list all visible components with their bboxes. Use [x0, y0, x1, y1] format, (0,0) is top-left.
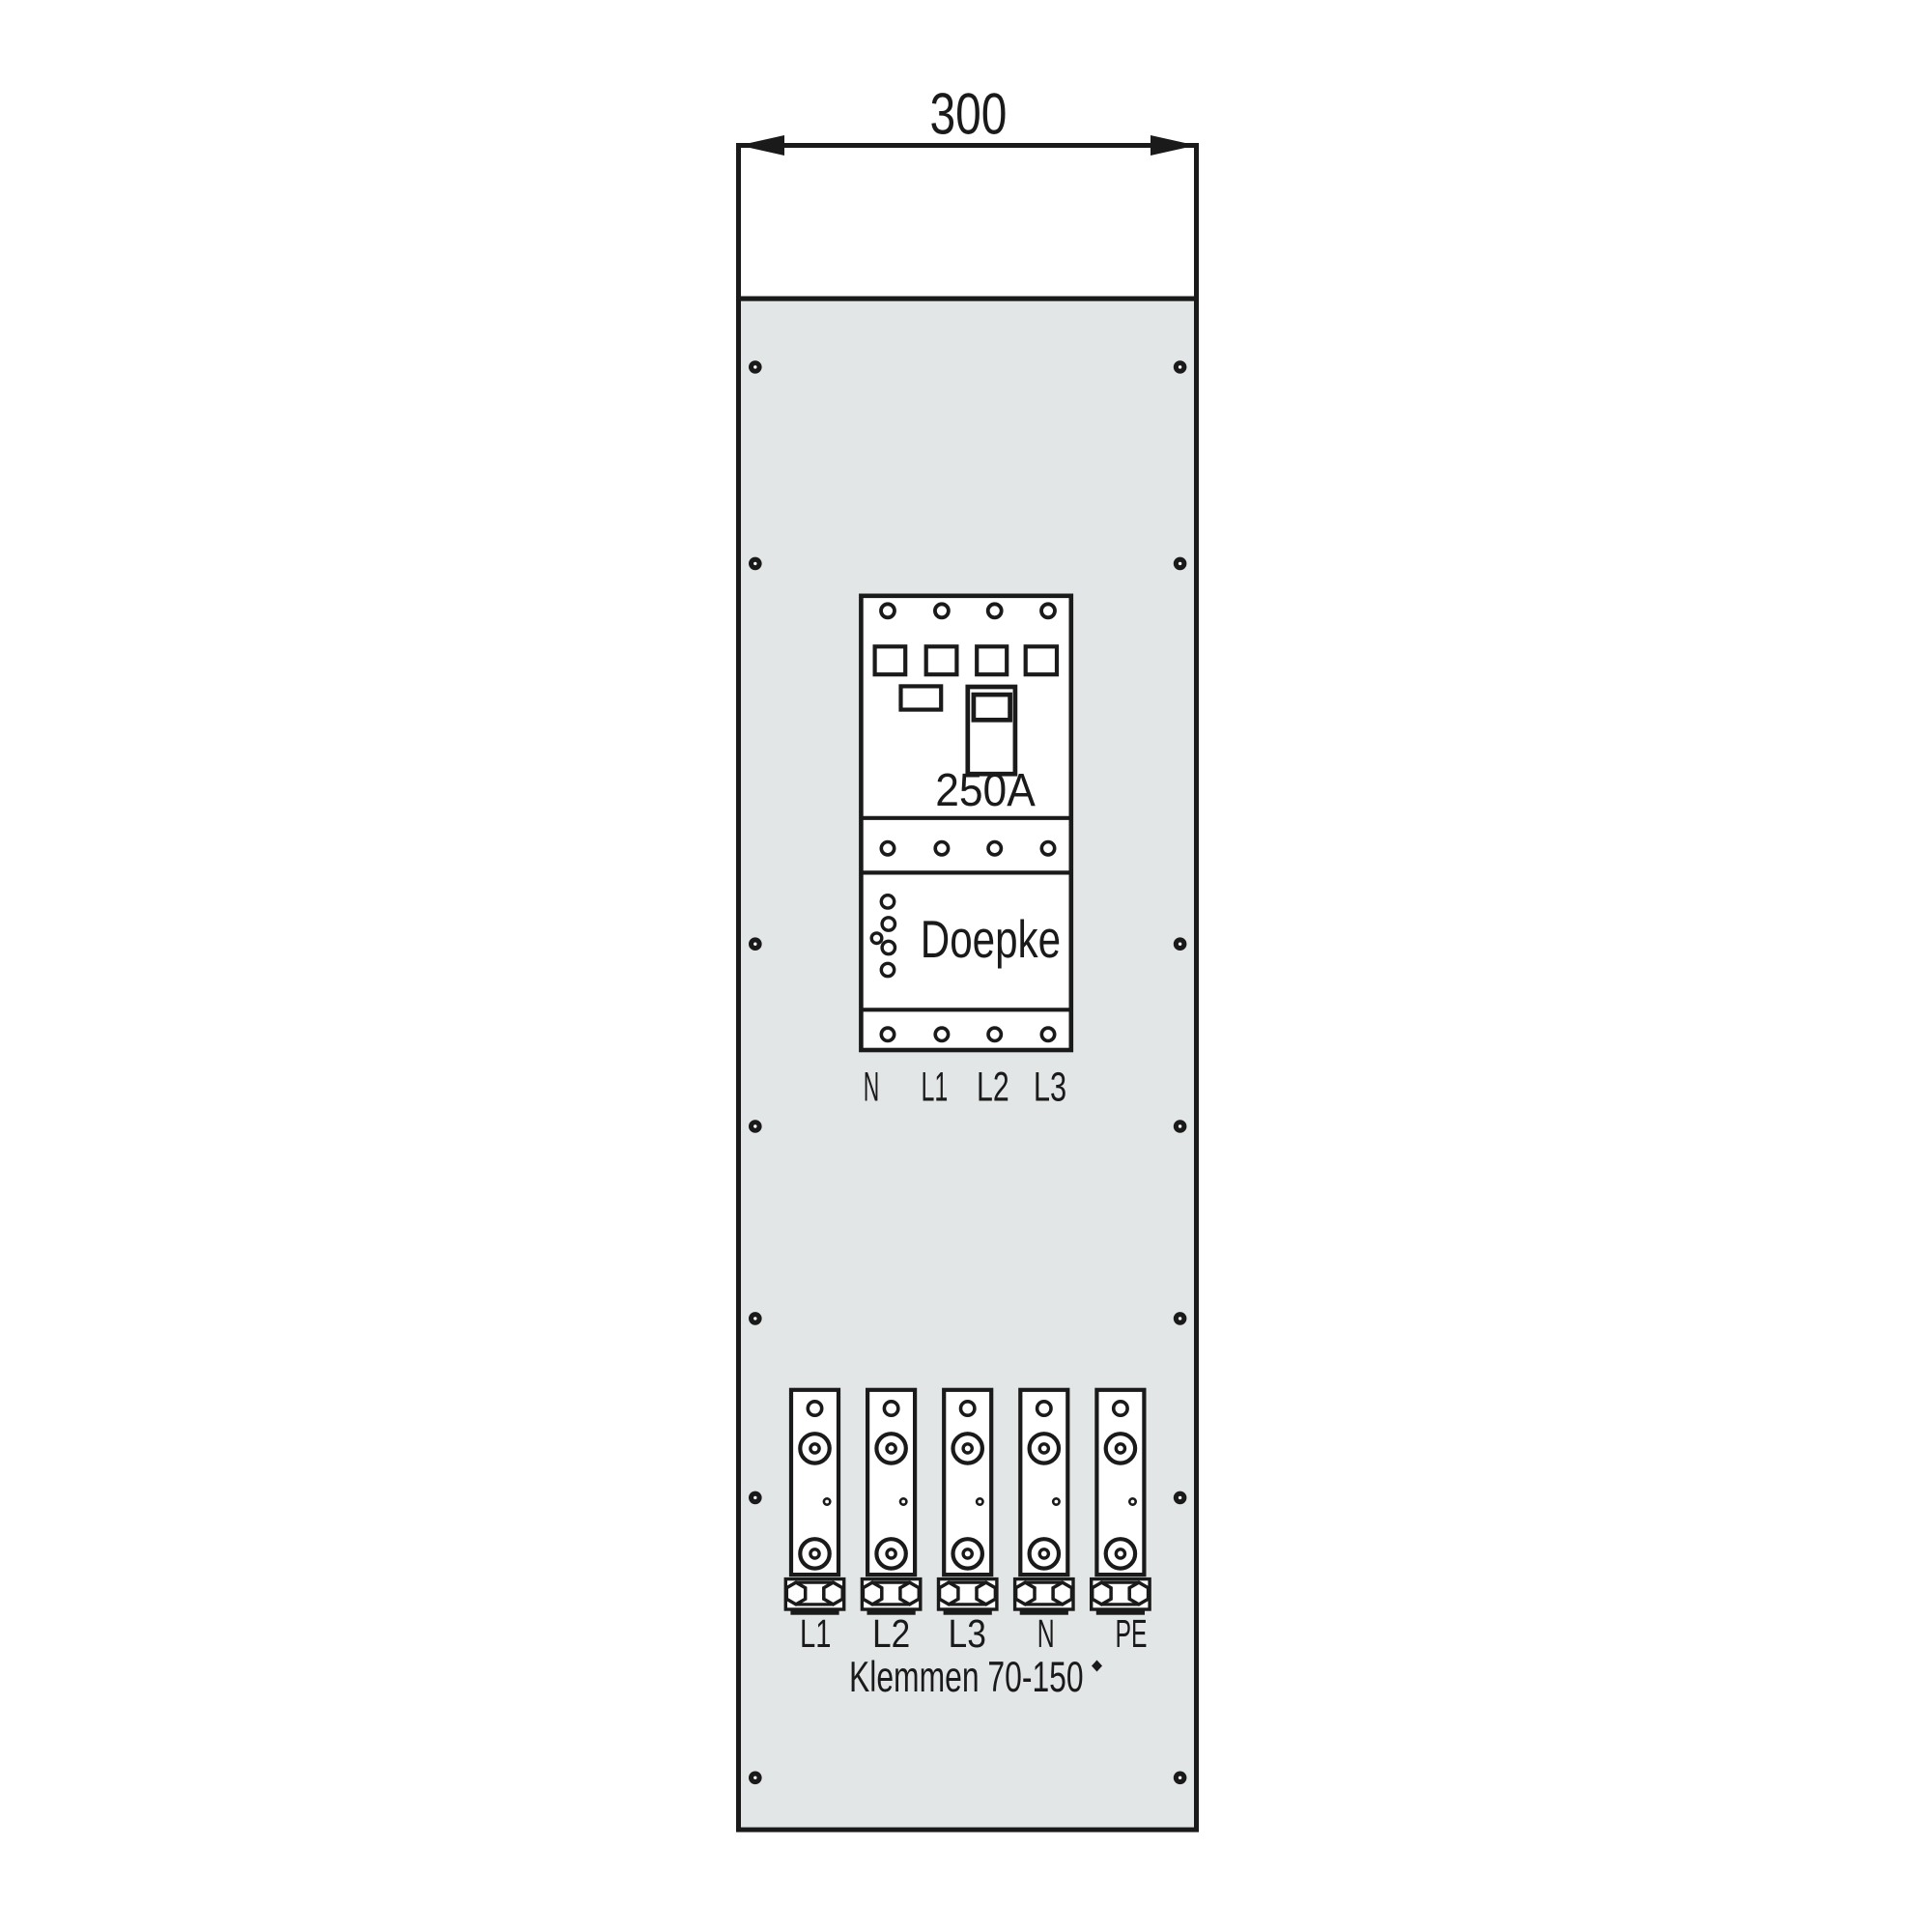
- svg-text:N: N: [1037, 1611, 1055, 1656]
- svg-text:Klemmen 70-150: Klemmen 70-150: [849, 1654, 1084, 1701]
- svg-text:L1: L1: [922, 1065, 949, 1111]
- svg-text:250A: 250A: [935, 764, 1036, 816]
- svg-text:L3: L3: [949, 1611, 986, 1656]
- svg-text:N: N: [864, 1065, 880, 1111]
- svg-text:L3: L3: [1034, 1065, 1066, 1111]
- svg-text:L2: L2: [872, 1611, 910, 1656]
- svg-text:PE: PE: [1116, 1611, 1148, 1656]
- svg-text:L2: L2: [977, 1065, 1009, 1111]
- svg-text:Doepke: Doepke: [921, 909, 1061, 969]
- svg-text:300: 300: [929, 82, 1007, 147]
- svg-text:L1: L1: [800, 1611, 831, 1656]
